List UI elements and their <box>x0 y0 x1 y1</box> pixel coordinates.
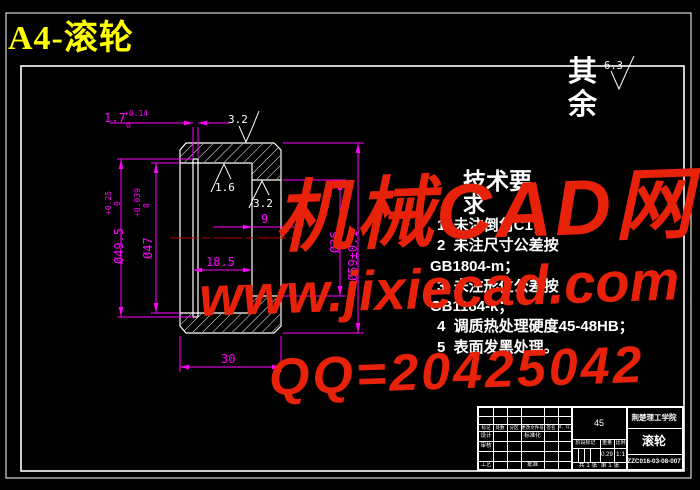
tb-label-design: 设计 <box>479 431 493 441</box>
roughness-bore-symbol: 1.6 <box>211 164 235 194</box>
tb-company: 荆楚理工学院 <box>626 408 682 428</box>
tech-req-line: 4 调质热处理硬度45-48HB； <box>430 317 692 337</box>
roughness-recess-text: 3.2 <box>253 197 273 210</box>
tb-header-mark: 标记 <box>479 424 493 431</box>
dim-recess-depth-text: 9 <box>261 212 268 226</box>
dim-groove-dia-tol-up: +0.25 <box>104 191 113 215</box>
dim-groove-dia-tol-dn: 0 <box>113 201 122 206</box>
tb-header-count: 处数 <box>493 424 507 431</box>
surface-note-label: 其余 <box>566 56 599 122</box>
cad-screenshot: 1.7 +0.14 0 9 18.5 <box>0 0 700 490</box>
tb-weight-value: 0.29 <box>600 448 614 462</box>
tb-material: 45 <box>571 408 627 439</box>
page-title: A4-滚轮 <box>8 10 134 59</box>
tb-label-approve: 批准 <box>521 461 544 469</box>
dim-bore-dia-tol-up: +0.039 <box>133 188 142 217</box>
tb-label-standardization: 标准化 <box>521 431 544 441</box>
tb-grid <box>578 448 579 462</box>
roughness-bore-text: 1.6 <box>215 181 235 194</box>
title-block: 标记 处数 分区 更改文件号 签名 年、月、日 设计 标准化 审核 工艺 批准 … <box>477 406 684 471</box>
tb-weight-label: 重量 <box>600 439 614 448</box>
tb-label-process: 工艺 <box>479 461 493 469</box>
dim-bore-dia-text: Ø47 <box>141 237 155 259</box>
tb-grid <box>493 408 494 469</box>
tb-grid <box>507 408 508 469</box>
dim-bore-dia-tol-dn: 0 <box>142 203 151 208</box>
hatch-top-wall <box>181 144 280 179</box>
tb-drawing-no: ZZC016-03-08-007 <box>626 454 682 469</box>
tb-grid <box>479 451 571 452</box>
dim-groove-dia-text: Ø49.5 <box>112 228 126 264</box>
dim-overall-width: 30 <box>180 336 281 372</box>
roughness-top-symbol: 3.2 <box>228 111 259 142</box>
default-roughness-symbol: 6.3 <box>604 56 634 89</box>
tb-label-check: 审核 <box>479 441 493 451</box>
tb-part-name: 滚轮 <box>626 428 682 454</box>
tb-grid <box>479 416 571 417</box>
tb-header-zone: 分区 <box>507 424 521 431</box>
tb-header-date: 年、月、日 <box>558 424 571 431</box>
roughness-top-text: 3.2 <box>228 113 248 126</box>
tb-grid <box>558 408 559 469</box>
tb-grid <box>590 448 591 462</box>
dim-groove-width-text: 1.7 <box>104 111 126 125</box>
dim-overall-width-text: 30 <box>221 352 235 366</box>
dim-groove-width-tol-up: +0.14 <box>124 109 148 118</box>
tb-sheet-info: 共 1 张 第 1 张 <box>571 462 627 470</box>
tb-grid <box>544 408 545 469</box>
tb-grid <box>584 448 585 462</box>
default-roughness-text: 6.3 <box>604 60 623 72</box>
dim-groove-width-tol-dn: 0 <box>126 121 131 130</box>
tb-header-change-file: 更改文件号 <box>521 424 544 431</box>
tb-stage-mark-label: 阶段标记 <box>571 439 600 448</box>
tb-header-signature: 签名 <box>544 424 558 431</box>
